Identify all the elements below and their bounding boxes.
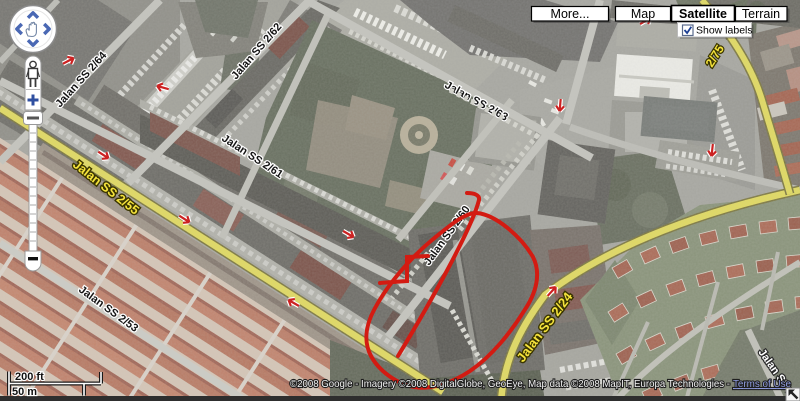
- svg-text:©2008 Google - Imagery ©2008 D: ©2008 Google - Imagery ©2008 DigitalGlob…: [290, 378, 730, 390]
- svg-text:Satellite: Satellite: [679, 7, 727, 21]
- svg-text:More...: More...: [551, 7, 590, 21]
- svg-text:Map: Map: [631, 7, 655, 21]
- svg-text:Terrain: Terrain: [742, 7, 780, 21]
- svg-text:50 m: 50 m: [12, 386, 37, 398]
- svg-text:200 ft: 200 ft: [15, 371, 44, 383]
- svg-text:Terms of Use: Terms of Use: [733, 378, 791, 390]
- svg-text:Show labels: Show labels: [696, 25, 753, 37]
